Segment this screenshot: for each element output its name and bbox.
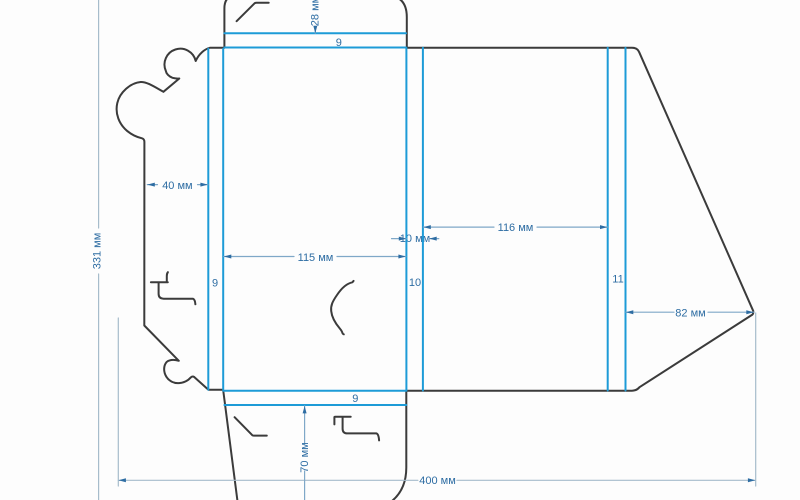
- svg-text:70 мм: 70 мм: [299, 442, 311, 472]
- svg-text:28 мм: 28 мм: [310, 0, 322, 26]
- svg-text:10: 10: [409, 277, 421, 289]
- svg-text:400 мм: 400 мм: [419, 475, 456, 487]
- svg-text:9: 9: [352, 393, 358, 405]
- svg-text:9: 9: [212, 277, 218, 289]
- svg-text:115 мм: 115 мм: [298, 252, 334, 264]
- svg-text:116 мм: 116 мм: [498, 222, 534, 234]
- svg-text:11: 11: [612, 274, 623, 286]
- svg-text:331 мм: 331 мм: [91, 233, 103, 270]
- svg-text:9: 9: [336, 37, 342, 49]
- svg-text:82 мм: 82 мм: [675, 307, 705, 319]
- svg-text:40 мм: 40 мм: [162, 180, 192, 192]
